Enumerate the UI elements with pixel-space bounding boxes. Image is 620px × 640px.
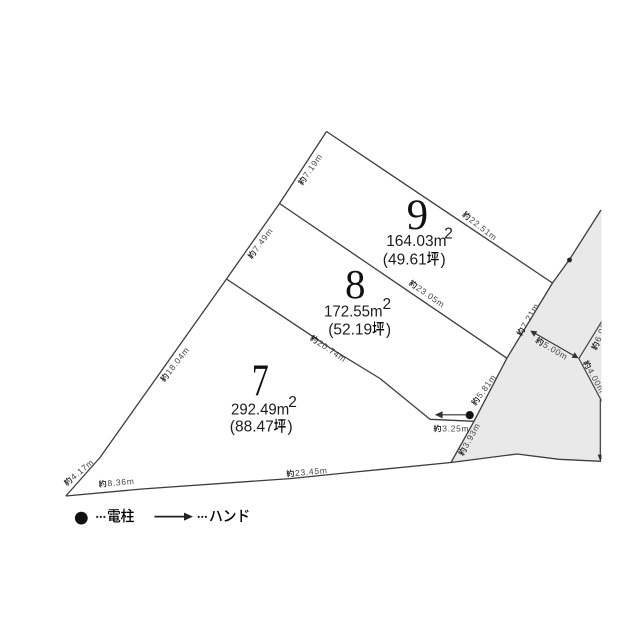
svg-text:3.25m: 3.25m <box>442 423 469 433</box>
svg-text:): ) <box>386 321 391 338</box>
svg-text:292.49m: 292.49m <box>231 401 289 418</box>
svg-text:(88.47: (88.47 <box>230 419 274 436</box>
svg-text:2: 2 <box>444 226 453 243</box>
svg-text:9: 9 <box>407 192 429 239</box>
svg-text:): ) <box>288 419 293 436</box>
svg-text:2: 2 <box>288 394 297 411</box>
svg-text:8: 8 <box>345 261 366 307</box>
svg-text:7: 7 <box>252 354 269 405</box>
svg-text:172.55m: 172.55m <box>324 304 383 321</box>
svg-text:(49.61: (49.61 <box>383 251 427 268</box>
svg-text:2: 2 <box>383 296 392 313</box>
svg-text:(52.19: (52.19 <box>328 321 372 338</box>
svg-text:): ) <box>441 251 446 268</box>
svg-text:164.03m: 164.03m <box>386 233 446 250</box>
